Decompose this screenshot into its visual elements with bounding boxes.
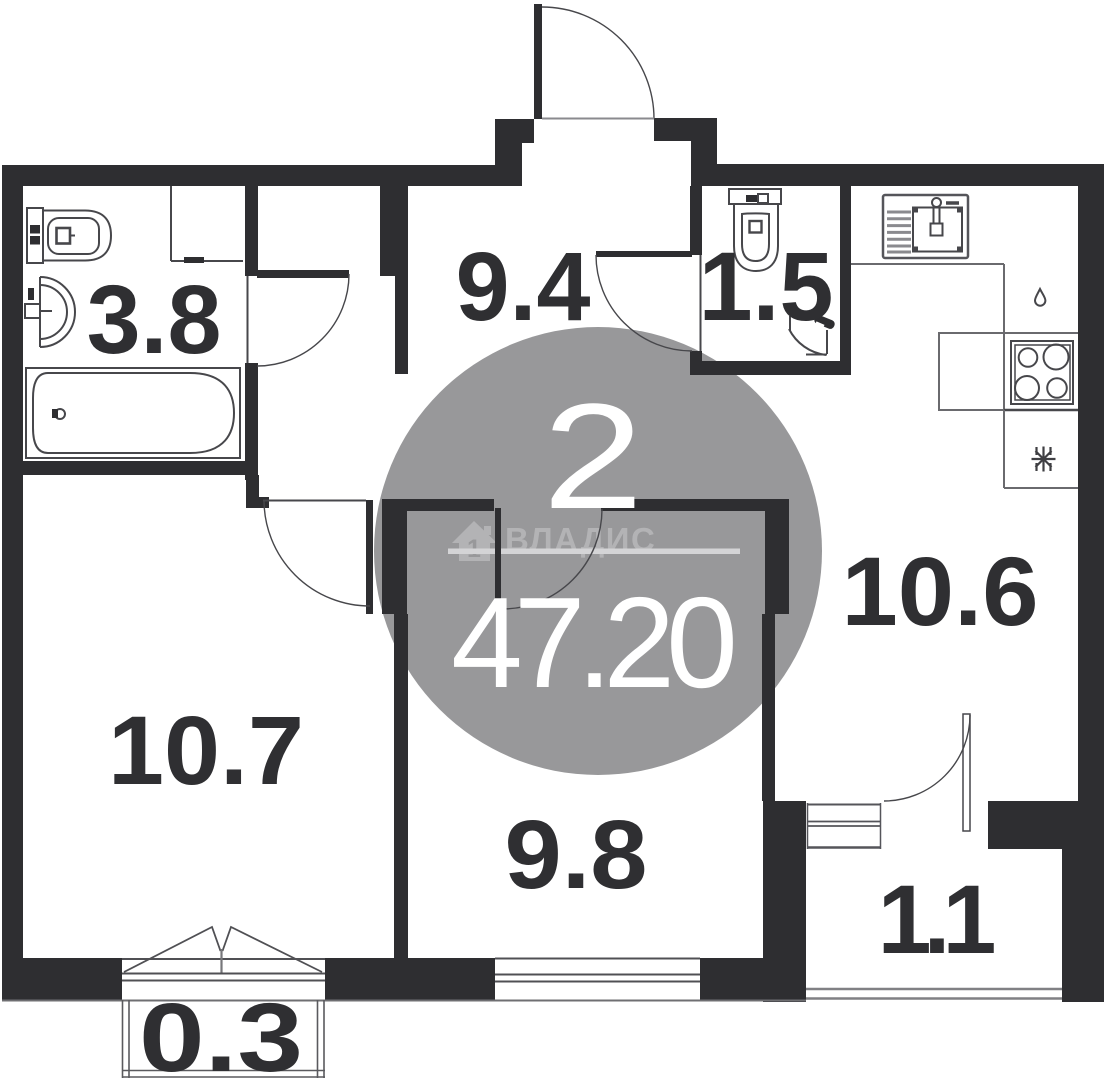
svg-text:47.20: 47.20	[451, 571, 733, 715]
svg-text:10.7: 10.7	[108, 696, 304, 805]
svg-text:1.5: 1.5	[699, 232, 834, 341]
svg-text:9.8: 9.8	[505, 800, 648, 909]
svg-text:0.3: 0.3	[139, 983, 303, 1080]
svg-text:2: 2	[543, 372, 644, 540]
svg-text:3.8: 3.8	[87, 265, 222, 374]
svg-text:10.6: 10.6	[842, 537, 1039, 646]
svg-text:9.4: 9.4	[456, 232, 591, 341]
svg-text:1.1: 1.1	[878, 865, 995, 974]
